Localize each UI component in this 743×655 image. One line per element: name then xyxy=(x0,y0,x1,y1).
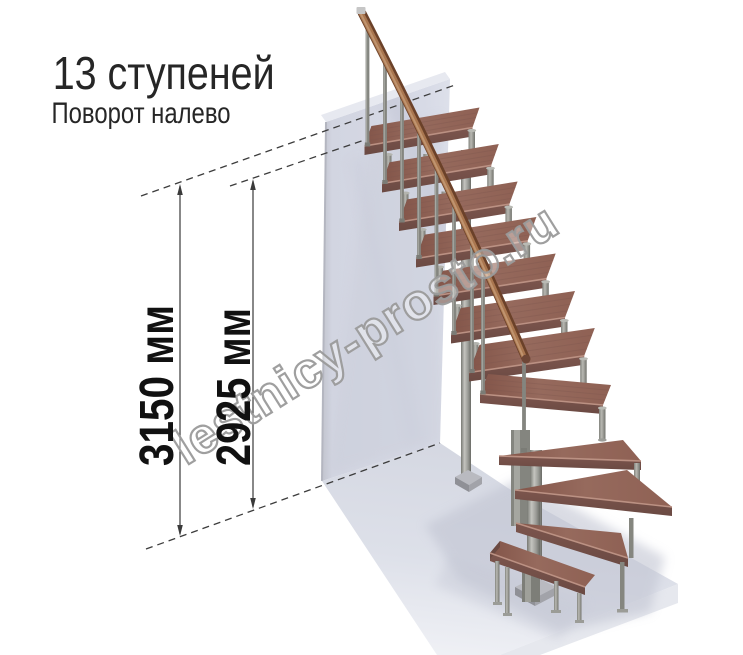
svg-text:Поворот налево: Поворот налево xyxy=(52,97,231,130)
svg-text:3150 мм: 3150 мм xyxy=(131,305,184,466)
svg-text:2925 мм: 2925 мм xyxy=(208,308,261,466)
svg-text:13 ступеней: 13 ступеней xyxy=(53,47,275,99)
